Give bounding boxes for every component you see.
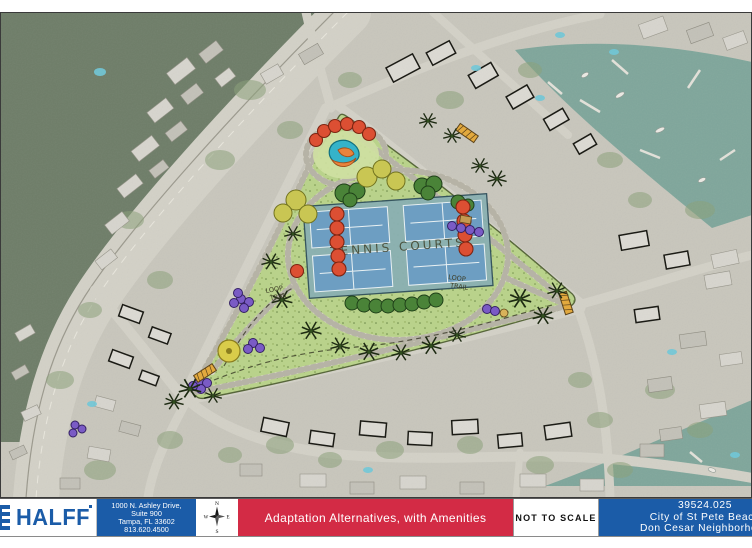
aerial-plan-svg: TENNIS COURTS: [0, 12, 752, 498]
banner-panel: Adaptation Alternatives, with Amenities: [238, 499, 513, 536]
scale-panel: NOT TO SCALE: [513, 499, 599, 536]
project-name: Don Cesar Neighborhood: [599, 523, 752, 535]
address-line: 813.620.4500: [97, 526, 196, 534]
logo-text: HALFF: [16, 504, 90, 531]
compass-panel: N S W E: [196, 499, 238, 536]
scale-note: NOT TO SCALE: [515, 513, 596, 523]
title-block: HALFF 1000 N. Ashley Drive, Suite 900 Ta…: [0, 498, 752, 537]
plan-sheet: TENNIS COURTS: [0, 0, 752, 548]
svg-text:E: E: [226, 516, 229, 521]
project-panel: 39524.025 City of St Pete Beach Don Cesa…: [599, 499, 752, 536]
sheet-title: Adaptation Alternatives, with Amenities: [265, 511, 487, 525]
project-number: 39524.025: [599, 500, 752, 512]
north-arrow-icon: N S W E: [196, 499, 238, 534]
svg-text:N: N: [215, 501, 219, 507]
logo-panel: HALFF: [0, 499, 97, 536]
halff-logo-icon: [0, 505, 10, 530]
svg-text:W: W: [204, 516, 209, 521]
client-name: City of St Pete Beach: [599, 512, 752, 524]
site-plan-map: TENNIS COURTS: [0, 12, 752, 498]
svg-text:S: S: [215, 529, 218, 534]
address-panel: 1000 N. Ashley Drive, Suite 900 Tampa, F…: [97, 499, 196, 536]
registered-mark-icon: [89, 505, 92, 508]
